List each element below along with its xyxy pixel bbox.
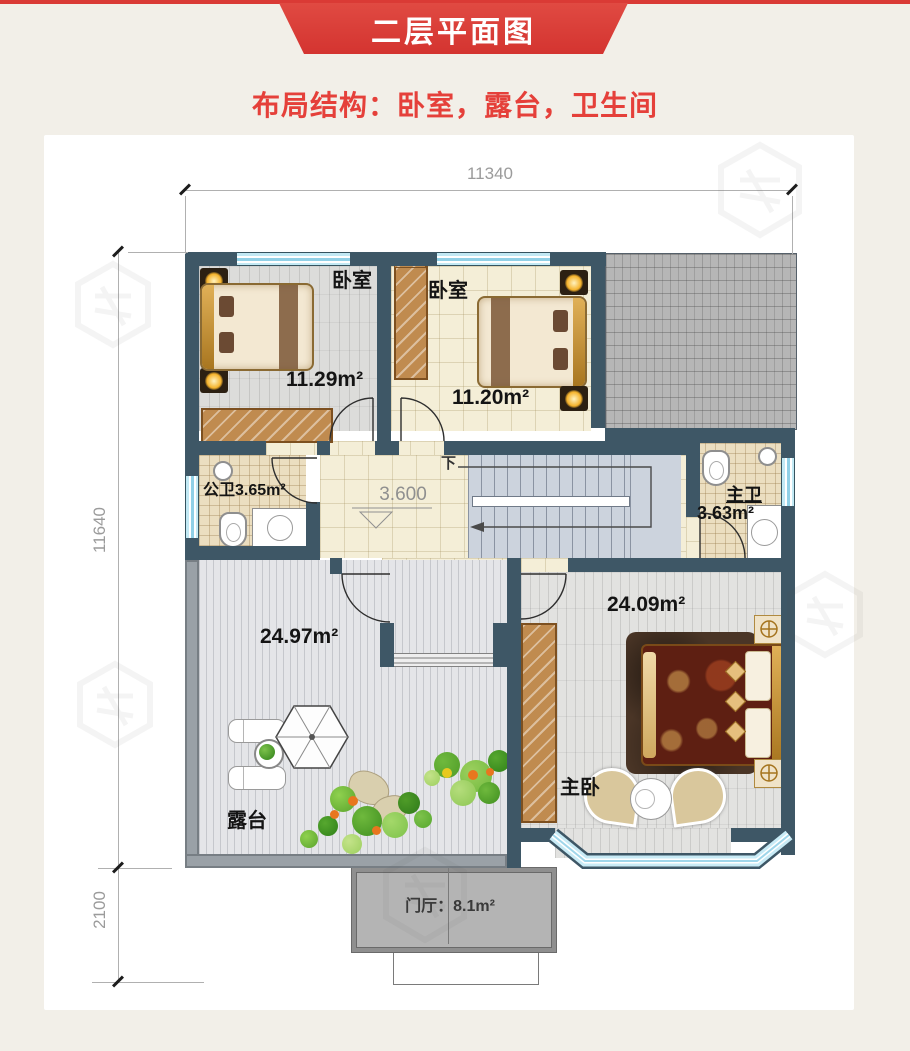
layout-subtitle: 布局结构：卧室，露台，卫生间: [0, 84, 910, 124]
public-bath-label: 公卫3.65m²: [203, 476, 286, 500]
logo-watermark-icon: [68, 260, 158, 350]
public-bath-name: 公卫: [203, 482, 235, 499]
dim-label-bottom-left: 2100: [90, 870, 110, 950]
stairs-down-label: 下: [441, 452, 456, 473]
logo-watermark-icon: [710, 140, 810, 240]
dim-extension: [185, 196, 186, 254]
compass-ornament-icon: [761, 621, 777, 781]
bedroom1-door: [330, 398, 373, 441]
bedroom1-area: 11.29m²: [286, 368, 363, 392]
terrace-door: [342, 574, 390, 622]
dim-line-bottom-left: [118, 868, 119, 982]
master-bedroom-door: [521, 574, 566, 619]
dim-label-left: 11640: [90, 490, 110, 570]
dim-label-top: 11340: [430, 164, 550, 184]
page-title: 二层平面图: [371, 7, 536, 51]
floor-plan-page: 二层平面图 布局结构：卧室，露台，卫生间: [0, 0, 910, 1051]
door-swings: [272, 398, 745, 622]
umbrella-icon: [276, 706, 348, 768]
bedroom1-label: 卧室: [332, 264, 372, 293]
bedroom2-label: 卧室: [428, 274, 468, 303]
elevation-label: 3.600: [373, 484, 433, 506]
logo-watermark-icon: [70, 660, 160, 750]
master-bath-area: 3.63m²: [697, 503, 754, 524]
bedroom2-area: 11.20m²: [452, 386, 529, 410]
dim-extension: [92, 982, 204, 983]
terrace-area: 24.97m²: [260, 625, 338, 649]
bedroom2-door: [401, 398, 444, 441]
master-bedroom-label: 主卧: [560, 771, 600, 800]
title-banner: 二层平面图: [279, 3, 628, 54]
terrace-label: 露台: [227, 804, 267, 833]
bay-window: [553, 835, 789, 861]
dim-extension: [98, 868, 172, 869]
stairs-arrow: [458, 467, 651, 532]
dim-line-top: [185, 190, 793, 191]
logo-watermark-icon: [375, 845, 475, 945]
public-bath-area: 3.65m²: [235, 482, 286, 499]
dim-extension: [128, 252, 188, 253]
master-bedroom-area: 24.09m²: [607, 593, 685, 617]
logo-watermark-icon: [780, 570, 870, 660]
elevation-symbol: [352, 508, 432, 528]
